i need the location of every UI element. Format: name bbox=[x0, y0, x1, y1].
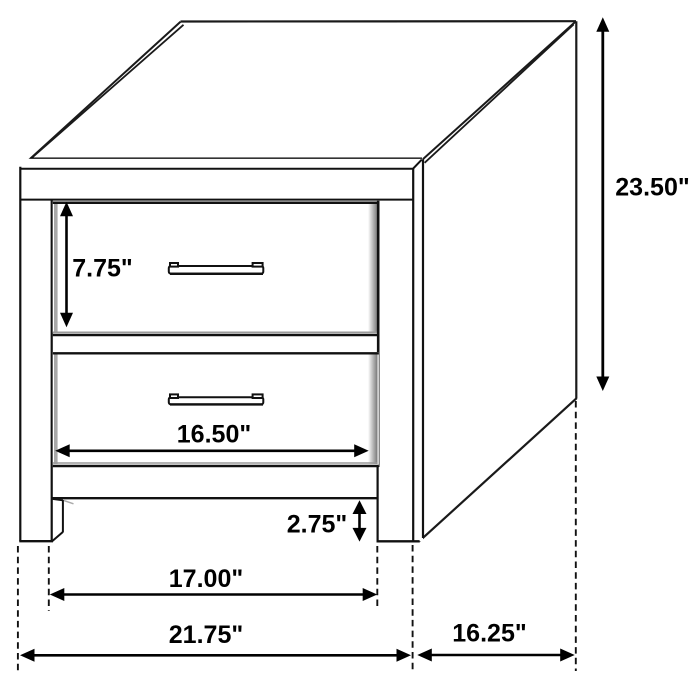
svg-text:23.50": 23.50" bbox=[615, 174, 689, 202]
svg-text:7.75": 7.75" bbox=[72, 255, 133, 283]
svg-text:2.75": 2.75" bbox=[287, 511, 348, 539]
svg-text:16.25": 16.25" bbox=[452, 620, 526, 648]
svg-text:21.75": 21.75" bbox=[169, 621, 243, 649]
svg-text:17.00": 17.00" bbox=[169, 565, 243, 593]
svg-text:16.50": 16.50" bbox=[177, 421, 251, 449]
